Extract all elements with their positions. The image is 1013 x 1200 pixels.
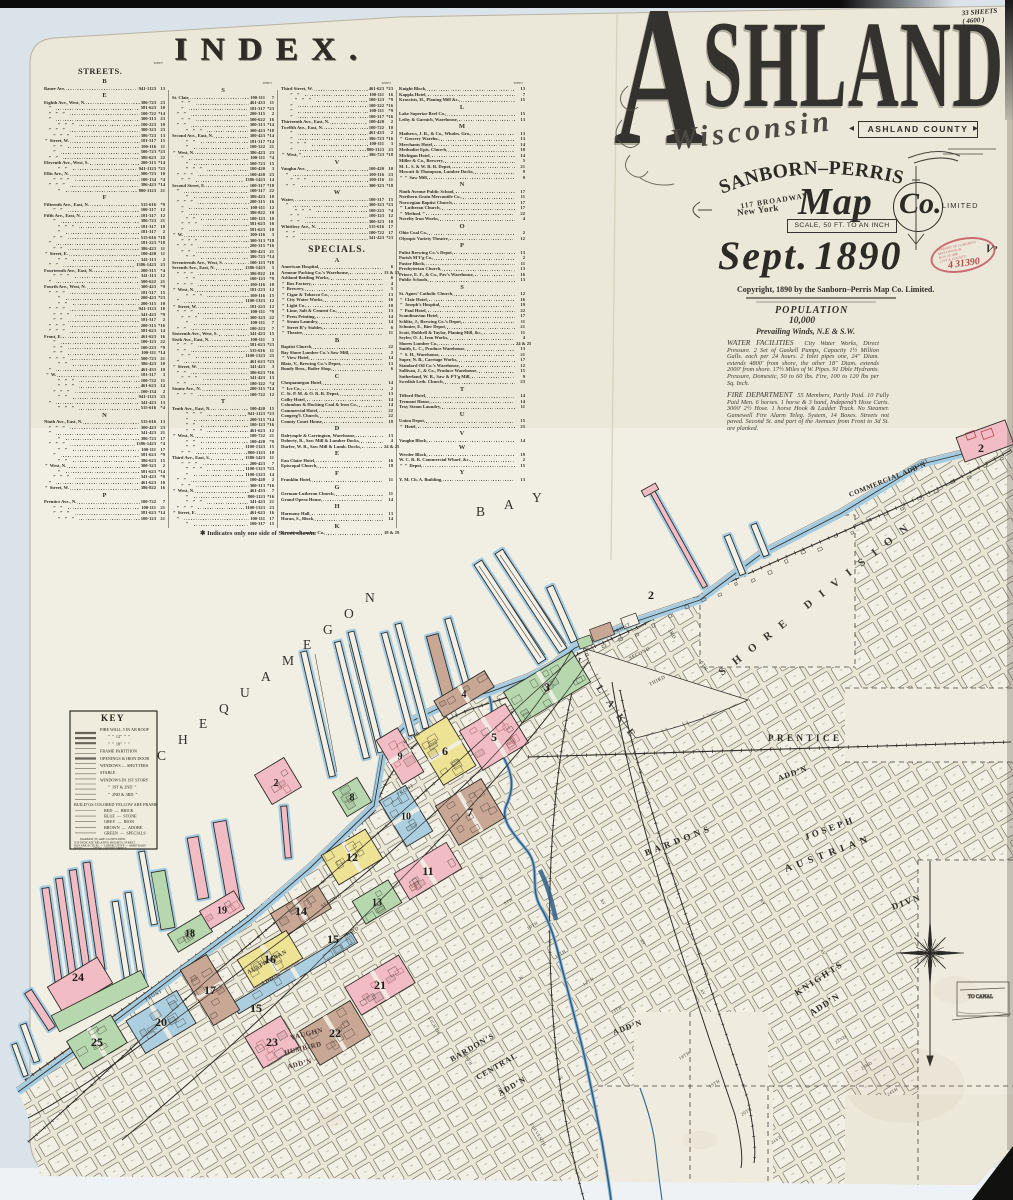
svg-text:5: 5 xyxy=(491,730,497,744)
svg-text:E: E xyxy=(303,637,311,652)
svg-text:WINDOWS — SHUTTERS: WINDOWS — SHUTTERS xyxy=(100,763,149,768)
svg-text:G: G xyxy=(323,622,333,637)
svg-text:14: 14 xyxy=(295,904,307,918)
svg-text:11: 11 xyxy=(422,864,433,878)
svg-text:SOLID — — — METAL • WOOD CORNI: SOLID — — — METAL • WOOD CORNICE xyxy=(74,847,127,850)
svg-text:STABLE: STABLE xyxy=(100,770,116,775)
svg-text:2: 2 xyxy=(978,441,984,455)
svg-text:BLUE — STONE: BLUE — STONE xyxy=(104,814,137,819)
svg-text:PRENTICE: PRENTICE xyxy=(768,733,843,743)
svg-text:H: H xyxy=(178,732,188,747)
svg-text:M: M xyxy=(282,653,294,668)
svg-text:Y: Y xyxy=(532,490,542,505)
svg-text:9: 9 xyxy=(398,752,403,763)
svg-text:23: 23 xyxy=(266,1035,278,1049)
svg-text:A: A xyxy=(261,669,271,684)
svg-text:” ” 18” ” ”: ” ” 18” ” ” xyxy=(108,741,130,746)
svg-text:O: O xyxy=(344,606,354,621)
svg-text:” 1ST & 2ND ”: ” 1ST & 2ND ” xyxy=(108,785,136,790)
svg-text:E: E xyxy=(199,716,207,731)
svg-text:B: B xyxy=(476,504,485,519)
svg-text:25: 25 xyxy=(91,1035,103,1049)
svg-text:BUILD’GS COLORED YELLOW ARE FR: BUILD’GS COLORED YELLOW ARE FRAME xyxy=(74,802,158,807)
svg-text:10: 10 xyxy=(401,812,411,823)
svg-text:Q: Q xyxy=(219,701,229,716)
svg-text:19: 19 xyxy=(217,906,227,917)
svg-text:4: 4 xyxy=(462,690,467,701)
svg-text:22: 22 xyxy=(329,1026,341,1040)
svg-text:21: 21 xyxy=(374,978,386,992)
svg-text:U: U xyxy=(240,685,250,700)
svg-text:18: 18 xyxy=(185,929,195,940)
svg-text:2: 2 xyxy=(648,588,654,602)
svg-text:8: 8 xyxy=(350,793,355,804)
svg-text:” ” 12” ” ”: ” ” 12” ” ” xyxy=(108,734,130,739)
svg-text:FRAME PARTITION: FRAME PARTITION xyxy=(100,749,137,754)
svg-text:KEY: KEY xyxy=(101,713,125,723)
svg-text:15: 15 xyxy=(327,932,339,946)
svg-text:GREEN — SPECIALS: GREEN — SPECIALS xyxy=(104,830,146,835)
svg-text:15: 15 xyxy=(250,1001,262,1015)
svg-text:FIRE WALL 5 IN AB ROOF: FIRE WALL 5 IN AB ROOF xyxy=(100,727,150,732)
svg-text:OPENINGS & IRON DOOR: OPENINGS & IRON DOOR xyxy=(100,756,149,761)
svg-text:24: 24 xyxy=(72,970,84,984)
svg-text:GREY — IRON: GREY — IRON xyxy=(104,819,134,824)
svg-text:WINDOWS IN 1ST STORY: WINDOWS IN 1ST STORY xyxy=(100,777,149,782)
svg-text:” 2ND & 3RD ”: ” 2ND & 3RD ” xyxy=(108,792,137,797)
svg-text:2: 2 xyxy=(274,778,279,789)
svg-text:6: 6 xyxy=(442,744,448,758)
svg-text:BROWN — ADOBE: BROWN — ADOBE xyxy=(104,825,143,830)
svg-text:RED — BRICK: RED — BRICK xyxy=(104,808,134,813)
svg-text:N: N xyxy=(365,590,375,605)
svg-text:C: C xyxy=(157,748,166,763)
svg-text:A: A xyxy=(504,497,514,512)
